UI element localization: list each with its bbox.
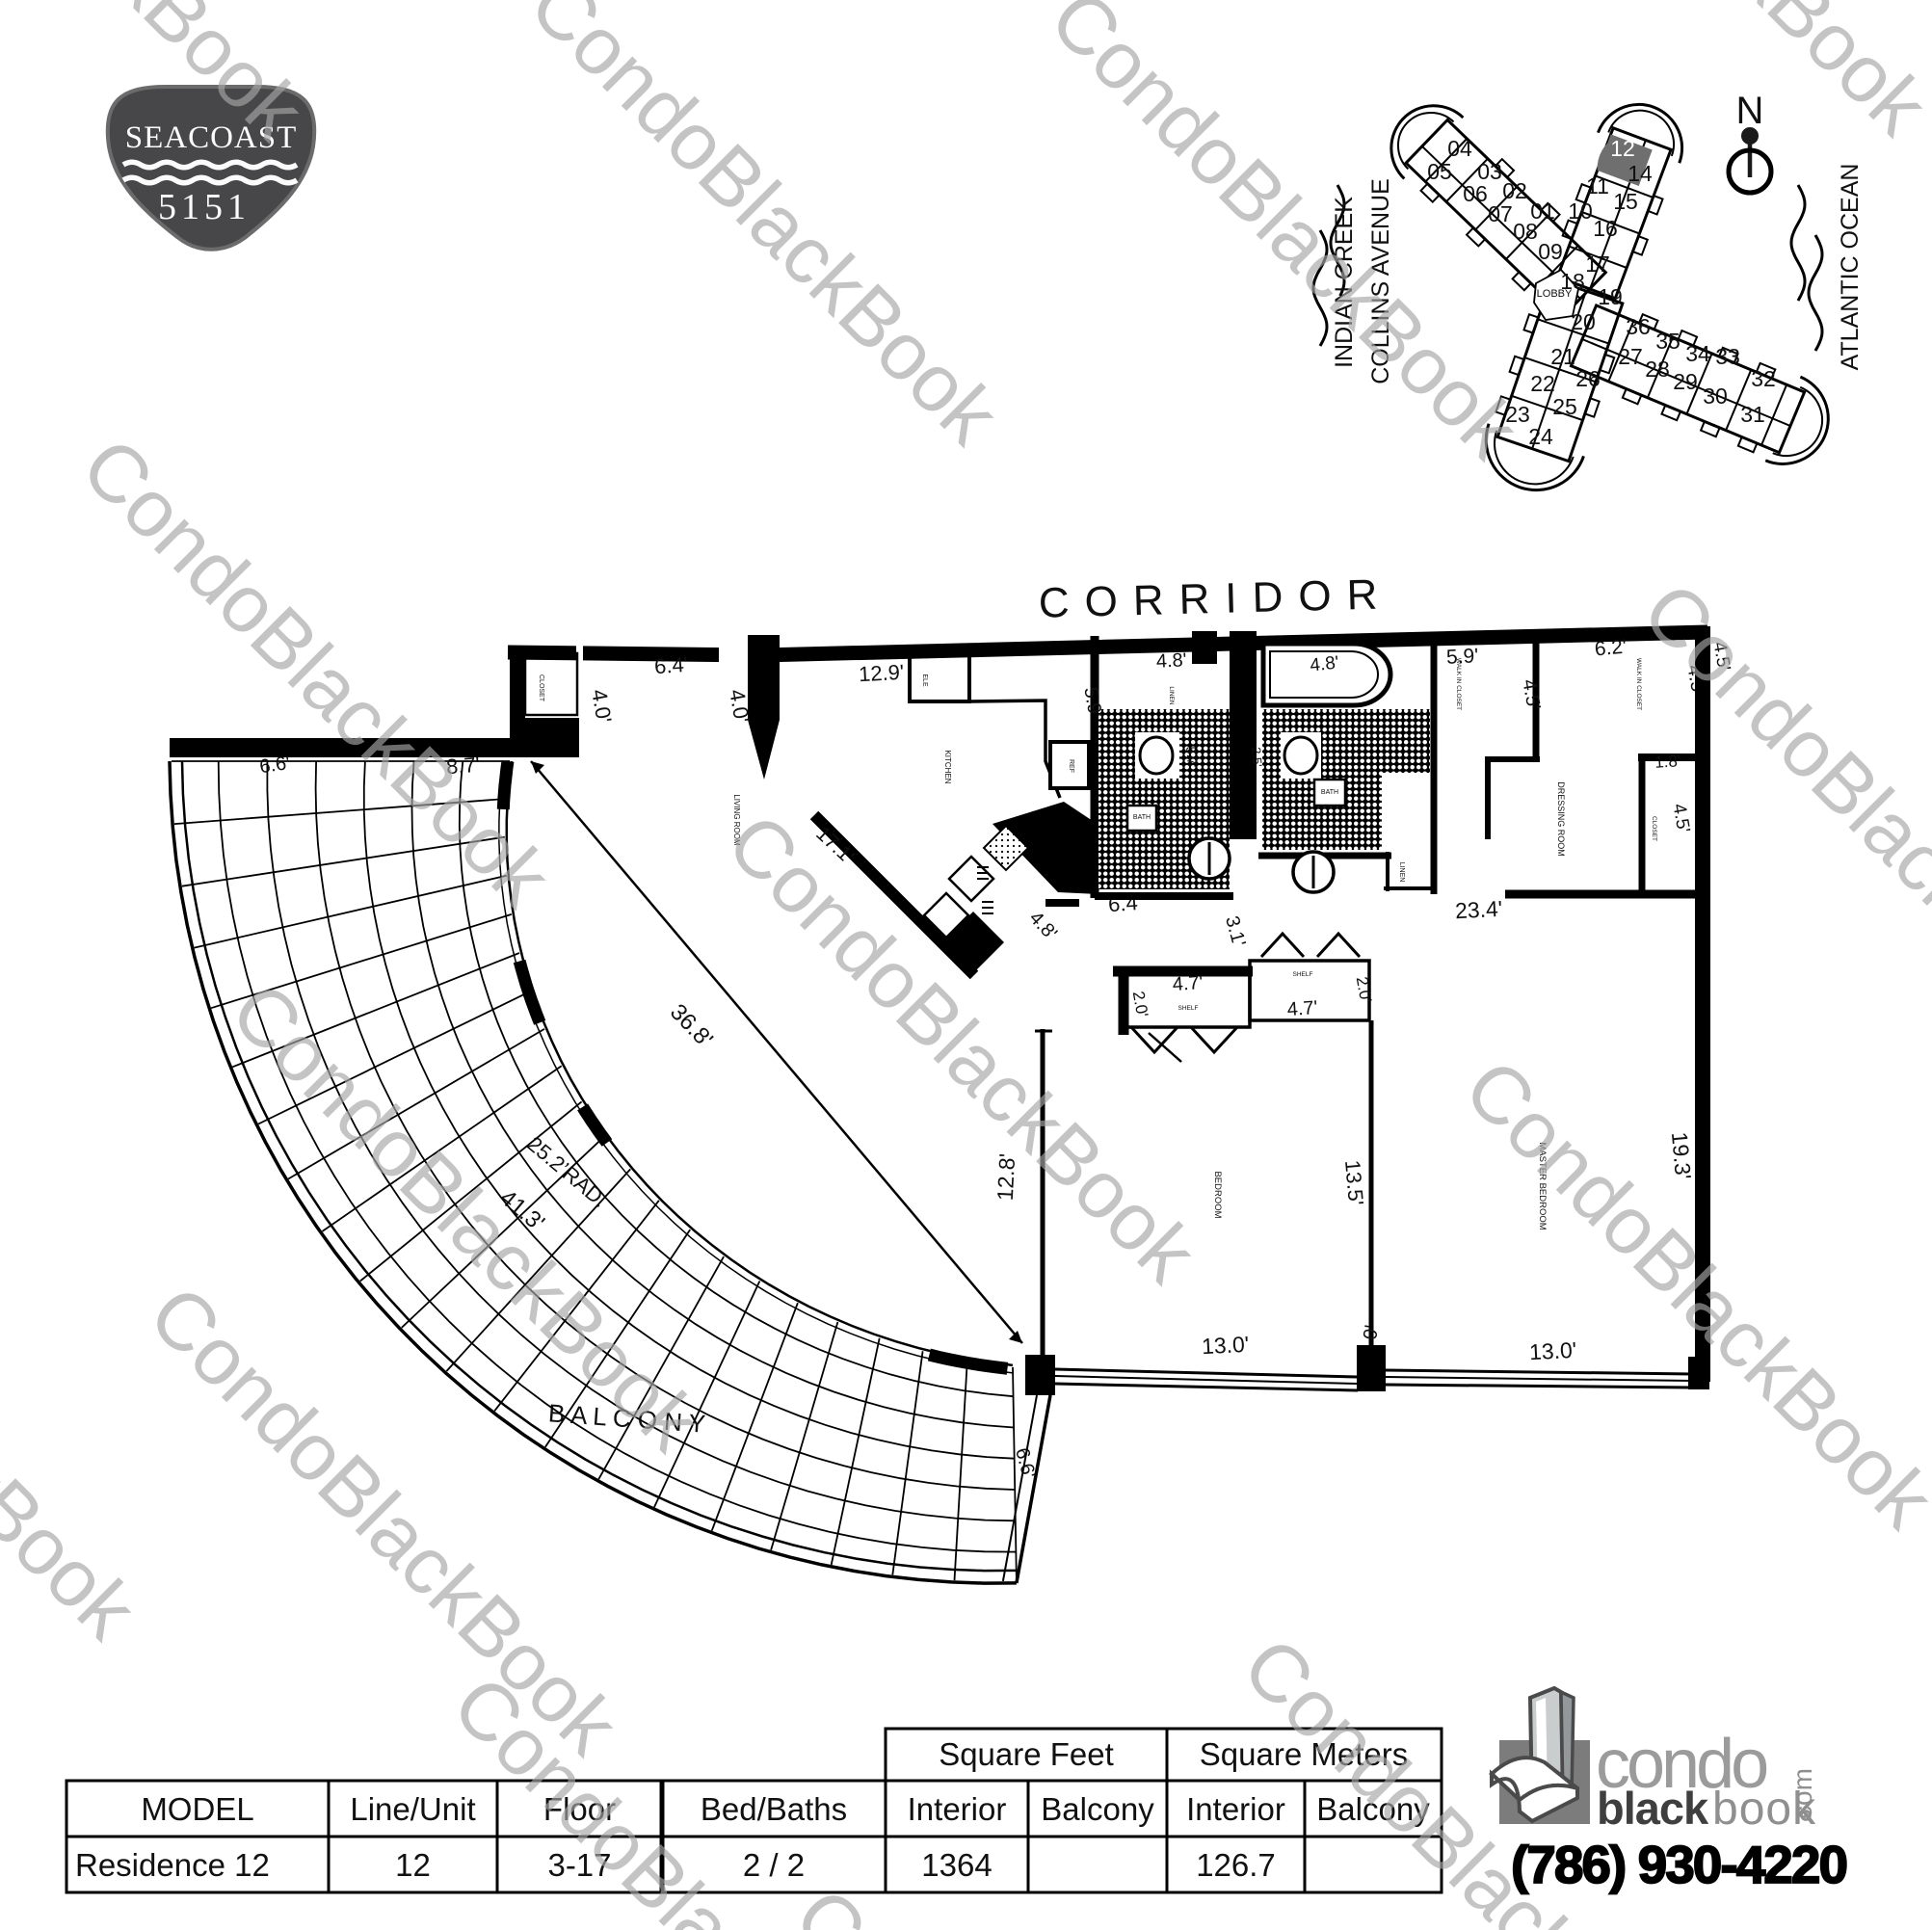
svg-text:02: 02	[1502, 178, 1527, 203]
svg-text:15: 15	[1613, 189, 1638, 214]
svg-text:29: 29	[1673, 369, 1698, 394]
svg-text:MODEL: MODEL	[141, 1791, 253, 1827]
svg-text:Residence 12: Residence 12	[75, 1847, 270, 1883]
svg-text:13.5': 13.5'	[1340, 1159, 1368, 1206]
svg-text:4.7': 4.7'	[1172, 972, 1204, 995]
svg-text:06: 06	[1463, 181, 1488, 206]
svg-text:ATLANTIC OCEAN: ATLANTIC OCEAN	[1837, 164, 1864, 371]
svg-text:6.4': 6.4'	[653, 652, 688, 678]
svg-text:4.8': 4.8'	[1309, 653, 1339, 676]
svg-text:09: 09	[1538, 239, 1563, 264]
svg-text:6.6': 6.6'	[258, 753, 291, 778]
svg-text:17: 17	[1585, 251, 1610, 277]
svg-text:BATH: BATH	[1133, 814, 1151, 821]
svg-text:13.0': 13.0'	[1528, 1337, 1576, 1365]
svg-text:CLOSET: CLOSET	[538, 674, 544, 702]
svg-text:CORRIDOR: CORRIDOR	[1038, 570, 1393, 627]
svg-text:LINEN: LINEN	[1398, 862, 1405, 883]
svg-text:23.4': 23.4'	[1454, 896, 1502, 924]
svg-text:LINEN: LINEN	[1168, 686, 1175, 704]
svg-text:WALK IN CLOSET: WALK IN CLOSET	[1635, 658, 1642, 710]
svg-text:13.0': 13.0'	[1201, 1332, 1249, 1360]
svg-text:4.7': 4.7'	[1286, 997, 1318, 1020]
svg-text:LOBBY: LOBBY	[1537, 288, 1573, 300]
svg-text:REF: REF	[1068, 759, 1074, 773]
svg-text:30: 30	[1703, 383, 1728, 409]
svg-text:05: 05	[1427, 159, 1452, 184]
svg-text:20: 20	[1571, 309, 1596, 334]
svg-text:22: 22	[1530, 371, 1555, 396]
svg-text:black: black	[1597, 1783, 1709, 1834]
svg-text:Line/Unit: Line/Unit	[350, 1791, 475, 1827]
svg-text:Interior: Interior	[1186, 1791, 1285, 1827]
svg-text:12: 12	[395, 1847, 431, 1883]
svg-text:KITCHEN: KITCHEN	[943, 750, 952, 783]
svg-text:4.8': 4.8'	[1155, 649, 1187, 673]
svg-text:04: 04	[1447, 136, 1472, 161]
svg-text:(786) 930-4220: (786) 930-4220	[1511, 1835, 1847, 1894]
svg-text:07: 07	[1488, 201, 1513, 226]
svg-text:5151: 5151	[158, 187, 251, 227]
svg-text:10: 10	[1568, 198, 1593, 224]
svg-text:36: 36	[1626, 314, 1651, 339]
svg-text:Bed/Baths: Bed/Baths	[701, 1791, 847, 1827]
svg-text:26: 26	[1575, 366, 1601, 391]
svg-text:WALK IN CLOSET: WALK IN CLOSET	[1455, 658, 1462, 710]
svg-text:DRESSING ROOM: DRESSING ROOM	[1556, 781, 1566, 857]
svg-text:11: 11	[1586, 173, 1609, 198]
svg-text:SHELF: SHELF	[1293, 971, 1313, 978]
svg-text:Square Feet: Square Feet	[939, 1736, 1114, 1772]
svg-text:19: 19	[1598, 284, 1623, 309]
svg-text:12: 12	[1610, 136, 1635, 161]
svg-text:31: 31	[1740, 402, 1765, 427]
svg-text:5.7': 5.7'	[1183, 746, 1201, 768]
svg-text:25: 25	[1552, 394, 1577, 419]
svg-text:BEDROOM: BEDROOM	[1212, 1171, 1223, 1218]
svg-text:1.8': 1.8'	[1654, 752, 1681, 772]
svg-text:Interior: Interior	[908, 1791, 1007, 1827]
svg-text:16: 16	[1593, 216, 1618, 241]
svg-text:12.9': 12.9'	[858, 660, 904, 686]
svg-text:28: 28	[1645, 357, 1670, 382]
svg-text:2 / 2: 2 / 2	[743, 1847, 805, 1883]
svg-text:2.5': 2.5'	[1249, 747, 1265, 768]
svg-text:CLOSET: CLOSET	[1651, 816, 1657, 841]
svg-text:BATH: BATH	[1321, 789, 1338, 796]
svg-text:ELE: ELE	[921, 674, 928, 687]
svg-text:32: 32	[1751, 366, 1776, 391]
svg-text:34: 34	[1685, 341, 1710, 366]
svg-text:Balcony: Balcony	[1041, 1791, 1154, 1827]
svg-text:6.2': 6.2'	[1594, 636, 1628, 661]
svg-text:14: 14	[1628, 161, 1653, 186]
svg-text:35: 35	[1655, 329, 1681, 354]
svg-text:SHELF: SHELF	[1178, 1005, 1199, 1012]
svg-text:1364: 1364	[921, 1847, 992, 1883]
svg-text:27: 27	[1618, 344, 1643, 369]
svg-text:33: 33	[1715, 344, 1740, 369]
svg-text:24: 24	[1528, 424, 1553, 449]
svg-text:126.7: 126.7	[1196, 1847, 1276, 1883]
svg-text:08: 08	[1513, 219, 1538, 244]
svg-text:21: 21	[1550, 344, 1575, 369]
svg-text:19.3': 19.3'	[1667, 1131, 1696, 1180]
svg-text:N: N	[1736, 90, 1764, 132]
